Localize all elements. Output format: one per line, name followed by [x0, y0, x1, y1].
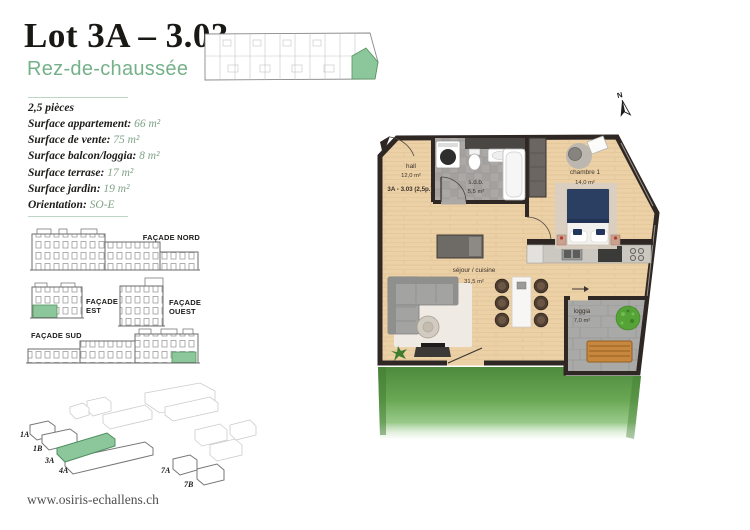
property-row: Surface de vente: 75 m²	[28, 134, 238, 150]
property-value: 66 m²	[134, 118, 160, 130]
property-label: Orientation:	[28, 199, 87, 211]
facade-ouest-drawing	[118, 278, 165, 326]
bed	[567, 189, 609, 245]
armchair-pouf	[417, 316, 439, 338]
wardrobe	[529, 138, 546, 197]
property-label: Surface appartement:	[28, 118, 131, 130]
room-area-hall: 12,0 m²	[401, 173, 421, 179]
website-link: www.osiris-echallens.ch	[27, 492, 159, 508]
property-value: 8 m²	[139, 150, 159, 162]
property-row: Surface terrase: 17 m²	[28, 167, 238, 183]
property-label: Surface de vente:	[28, 134, 110, 146]
room-label-bathroom: s.d.b.	[468, 179, 483, 186]
desk-chair	[569, 148, 582, 161]
facade-est-highlight	[33, 305, 57, 318]
property-value: SO-E	[90, 199, 115, 211]
site-label-7b: 7B	[184, 480, 194, 489]
property-value: 75 m²	[113, 134, 139, 146]
brochure-page: Lot 3A – 3.03 Rez-de-chaussée 2,5 pièces…	[0, 0, 750, 530]
property-label: Surface terrase:	[28, 167, 104, 179]
facade-ouest-label: FAÇADE OUEST	[169, 298, 211, 317]
property-value: 19 m²	[103, 183, 129, 195]
north-arrow: N	[615, 89, 630, 117]
property-rooms-count: 2,5 pièces	[28, 102, 238, 118]
property-value: 17 m²	[107, 167, 133, 179]
facade-nord-label: FAÇADE NORD	[140, 233, 200, 242]
room-label-hall: hall	[406, 163, 416, 170]
kitchen-sink	[562, 248, 582, 260]
facade-est-label: FAÇADE EST	[86, 297, 120, 316]
site-label-7a: 7A	[161, 466, 171, 475]
loggia	[566, 286, 647, 373]
room-area-loggia: 7,0 m²	[574, 318, 590, 324]
unit-label: 3A - 3.03 (2,5p.)	[387, 186, 432, 193]
facade-sud-label: FAÇADE SUD	[31, 331, 111, 340]
room-area-living: 31,5 m²	[464, 279, 484, 285]
grass-shade-left	[378, 367, 386, 435]
floor-subtitle: Rez-de-chaussée	[27, 58, 188, 81]
site-building-7a	[173, 455, 197, 475]
room-label-living: séjour / cuisine	[453, 267, 496, 274]
washing-machine	[436, 141, 460, 168]
bathroom-counter	[465, 138, 525, 149]
garden-grass	[378, 367, 641, 441]
property-row: Surface balcon/loggia: 8 m²	[28, 150, 238, 166]
building-overview-plan	[198, 20, 393, 90]
site-label-3a: 3A	[44, 456, 55, 465]
nightstand	[557, 235, 566, 245]
site-label-1a: 1A	[20, 430, 30, 439]
facade-sud-highlight	[172, 352, 196, 363]
property-row: Surface appartement: 66 m²	[28, 118, 238, 134]
bush	[616, 306, 640, 330]
property-row: Orientation: SO-E	[28, 199, 238, 215]
property-label: Surface balcon/loggia:	[28, 150, 136, 162]
property-label: Surface jardin:	[28, 183, 101, 195]
fridge	[527, 245, 543, 263]
room-area-bedroom: 14,0 m²	[575, 180, 595, 186]
room-label-loggia: loggia	[574, 308, 591, 315]
sideboard-end	[469, 237, 481, 256]
site-label-1b: 1B	[33, 444, 43, 453]
room-area-bathroom: 5,5 m²	[468, 189, 484, 195]
floor-plan: N 3A - 3.03 (2,5p.) hall 12,0 m² s.d.b. …	[370, 85, 680, 445]
site-label-4a: 4A	[58, 466, 69, 475]
separator-top	[28, 97, 128, 98]
nightstand	[611, 235, 620, 245]
dining-set	[495, 277, 548, 327]
property-row: Surface jardin: 19 m²	[28, 183, 238, 199]
property-details: 2,5 pièces Surface appartement: 66 m² Su…	[28, 102, 238, 215]
separator-bottom	[28, 216, 128, 217]
north-label: N	[616, 90, 623, 100]
toilet	[469, 149, 481, 170]
facade-est-drawing	[30, 283, 84, 318]
site-plan: 1A 1B 3A 4A 7A 7B	[15, 385, 265, 500]
site-building-7b	[197, 464, 224, 485]
bathtub	[503, 149, 525, 200]
room-label-bedroom: chambre 1	[570, 169, 601, 176]
